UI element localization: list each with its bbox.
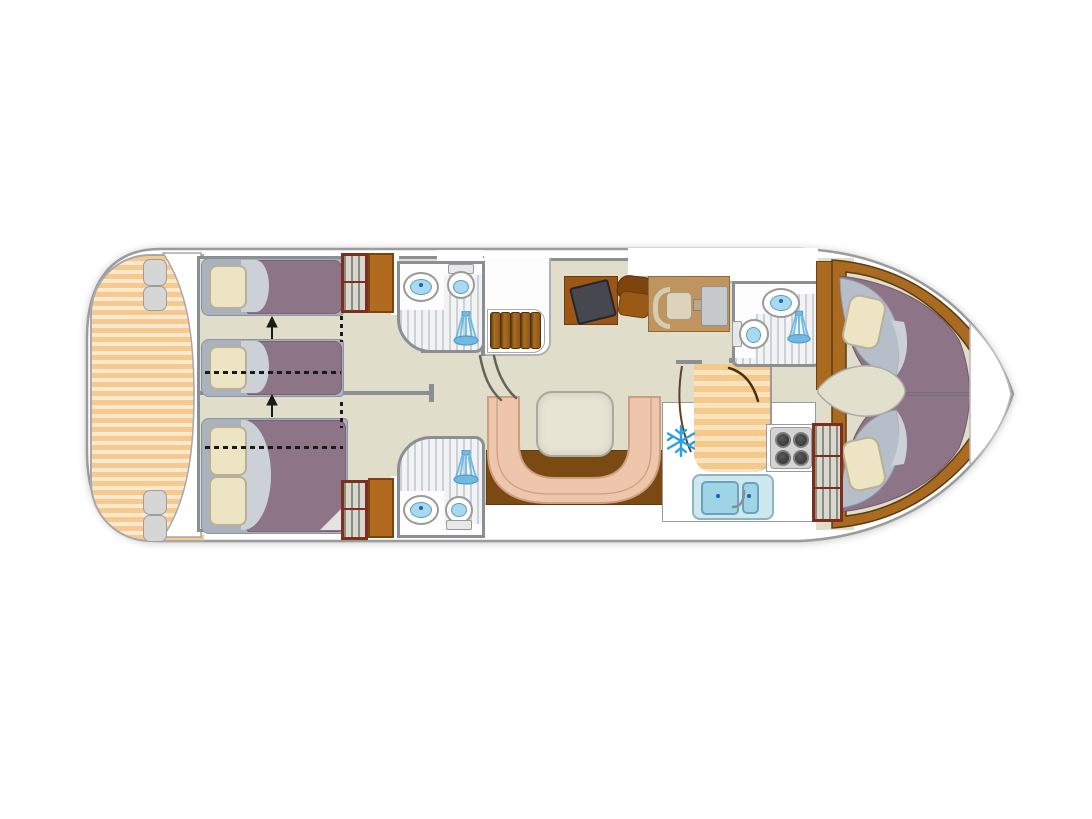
wardrobe-shelf bbox=[815, 455, 840, 457]
bow-deck bbox=[970, 323, 1011, 465]
wardrobe-slats bbox=[815, 426, 840, 519]
wardrobe-shelf bbox=[815, 487, 840, 489]
bow-cabin bbox=[818, 260, 1011, 528]
arrow-up-icon bbox=[267, 317, 277, 417]
stair-handrail bbox=[480, 356, 501, 400]
door-swing-arc bbox=[729, 368, 758, 401]
wardrobe-galley bbox=[812, 423, 843, 522]
boat-floor-plan bbox=[0, 0, 1092, 819]
faucet bbox=[733, 491, 744, 507]
dining-table bbox=[536, 391, 614, 457]
stair-handrail bbox=[494, 356, 516, 398]
bow-center-floor bbox=[818, 366, 905, 416]
